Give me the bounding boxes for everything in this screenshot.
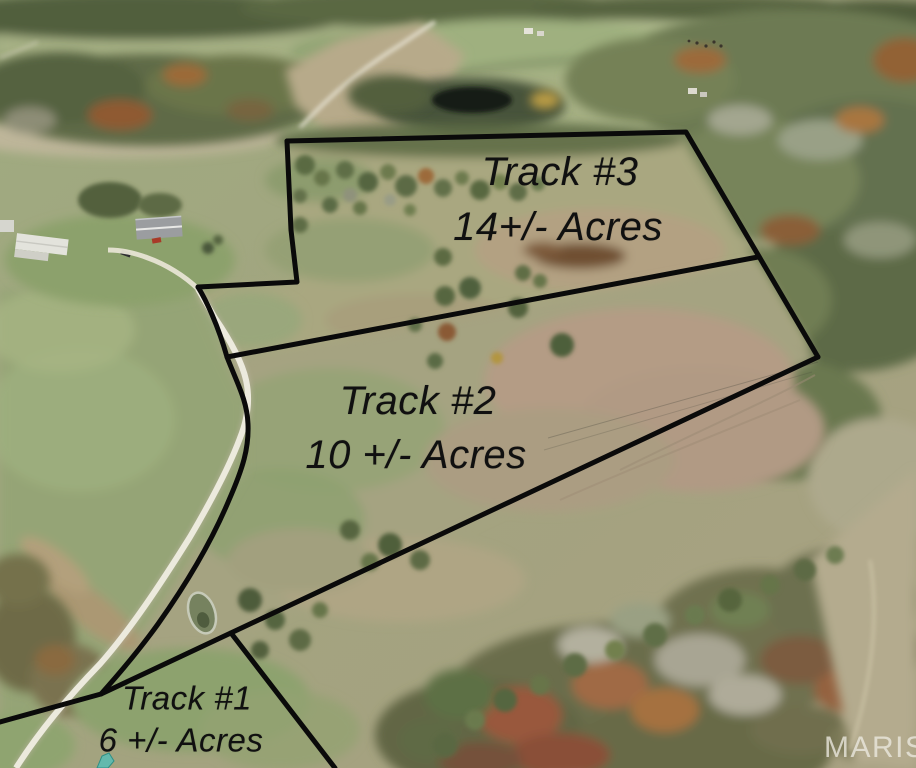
tract1-acreage-label: 6 +/- Acres [99,724,264,757]
house [135,216,182,239]
tract2-acreage-label: 10 +/- Acres [305,435,526,475]
tract3-name-label: Track #3 [482,152,639,192]
shed [0,220,14,232]
aerial-listing-photo: Track #3 14+/- Acres Track #2 10 +/- Acr… [0,0,916,768]
tract1-name-label: Track #1 [122,682,252,715]
maris-watermark: MARIS [824,733,916,763]
pond [432,87,512,113]
tract3-acreage-label: 14+/- Acres [453,207,663,247]
tract2-name-label: Track #2 [340,381,497,421]
